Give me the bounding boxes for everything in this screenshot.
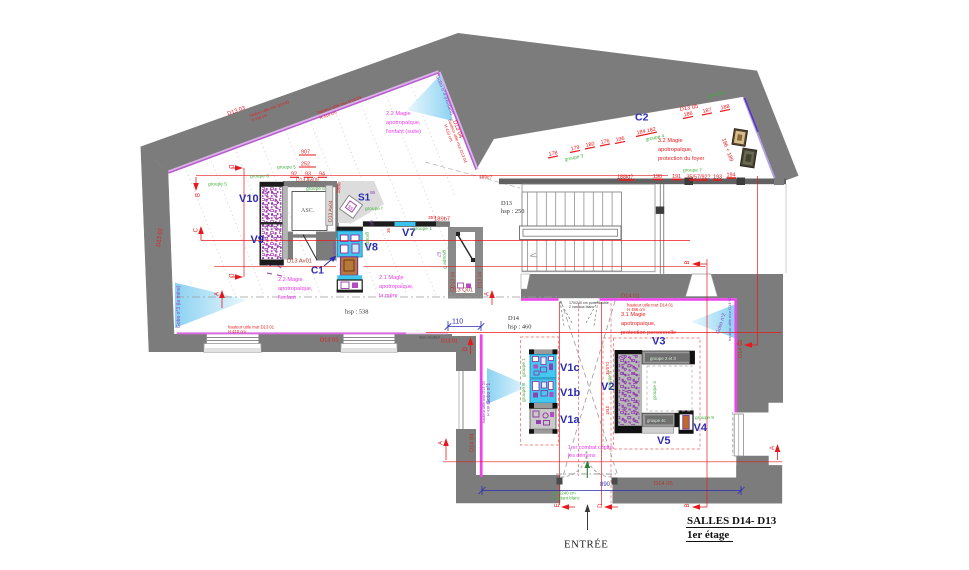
- svg-text:H 438 cm: H 438 cm: [487, 400, 491, 416]
- svg-text:groupe 4c: groupe 4c: [647, 418, 666, 423]
- svg-text:A: A: [770, 446, 776, 450]
- svg-text:V5: V5: [657, 435, 670, 447]
- svg-text:groupe 8: groupe 8: [521, 383, 527, 402]
- svg-text:protection du foyer: protection du foyer: [658, 156, 704, 162]
- svg-text:V3: V3: [652, 336, 665, 348]
- svg-text:D14 02: D14 02: [738, 339, 744, 358]
- svg-text:apotropaïque,: apotropaïque,: [278, 286, 313, 292]
- svg-text:B: B: [685, 504, 691, 508]
- svg-text:D13 04: D13 04: [451, 272, 457, 288]
- svg-text:V4: V4: [694, 422, 708, 434]
- svg-text:2 vantaux blanc: 2 vantaux blanc: [569, 305, 594, 309]
- svg-text:groupe 7: groupe 7: [683, 168, 702, 174]
- svg-text:D13: D13: [501, 200, 512, 207]
- svg-text:93: 93: [305, 172, 311, 178]
- svg-text:D: D: [227, 165, 233, 170]
- svg-text:189b7: 189b7: [434, 217, 450, 223]
- svg-text:A: A: [485, 292, 491, 296]
- svg-text:D: D: [598, 503, 604, 508]
- svg-text:C1: C1: [311, 266, 324, 277]
- svg-text:E: E: [555, 504, 561, 508]
- svg-text:V9: V9: [251, 234, 264, 246]
- svg-text:ENTRÉE: ENTRÉE: [564, 539, 608, 551]
- svg-text:groupe 6: groupe 6: [250, 174, 269, 180]
- svg-text:890: 890: [600, 482, 611, 488]
- svg-text:groupe 1: groupe 1: [521, 358, 527, 377]
- svg-text:groupe 9: groupe 9: [695, 415, 714, 421]
- svg-text:D: D: [227, 274, 233, 279]
- svg-text:groupe 5: groupe 5: [277, 165, 296, 171]
- svg-text:H 410 cm: H 410 cm: [228, 329, 246, 334]
- svg-text:B: B: [196, 193, 202, 197]
- svg-text:92: 92: [291, 172, 297, 178]
- svg-text:Gobo n°3 (la mère): Gobo n°3 (la mère): [176, 285, 182, 328]
- svg-text:apotropaïque,: apotropaïque,: [379, 284, 414, 290]
- svg-text:1er étage: 1er étage: [687, 529, 729, 541]
- svg-text:protection personnelle: protection personnelle: [621, 330, 676, 336]
- svg-text:H 486 cm: H 486 cm: [627, 307, 645, 312]
- svg-text:groupe 2: groupe 2: [364, 232, 371, 251]
- svg-text:35/57b: 35/57b: [332, 242, 337, 255]
- svg-text:95: 95: [370, 190, 376, 195]
- svg-text:hauteur utile mur D14 04: hauteur utile mur D14 04: [482, 381, 486, 423]
- svg-text:V1b: V1b: [560, 387, 580, 399]
- svg-text:D: D: [463, 346, 469, 351]
- svg-text:D14 05: D14 05: [654, 481, 673, 487]
- svg-text:57: 57: [435, 252, 441, 258]
- svg-text:181b: 181b: [605, 405, 610, 415]
- svg-text:groupe 1: groupe 1: [413, 226, 432, 232]
- svg-text:apotropaïque,: apotropaïque,: [386, 120, 421, 126]
- svg-text:2.2 Magie: 2.2 Magie: [386, 111, 411, 117]
- svg-text:35?: 35?: [428, 215, 436, 221]
- svg-text:V1a: V1a: [560, 414, 580, 426]
- svg-text:store occultant: store occultant: [419, 336, 440, 340]
- svg-text:hsp : 460: hsp : 460: [508, 324, 531, 331]
- svg-text:B: B: [685, 261, 691, 265]
- svg-text:groupe 2 et 3: groupe 2 et 3: [650, 356, 676, 361]
- svg-text:groupe 6: groupe 6: [306, 186, 325, 192]
- svg-text:2 battant blanc: 2 battant blanc: [551, 496, 581, 501]
- svg-text:S1: S1: [358, 193, 371, 204]
- svg-text:A: A: [439, 441, 445, 445]
- svg-text:2.2 Magie: 2.2 Magie: [278, 277, 303, 283]
- svg-text:D13 04: D13 04: [478, 272, 484, 288]
- svg-text:110: 110: [452, 319, 463, 326]
- svg-text:ASC.: ASC.: [301, 208, 315, 214]
- svg-text:A: A: [215, 292, 221, 296]
- svg-text:35: 35: [386, 227, 391, 233]
- svg-text:groupe 9: groupe 9: [441, 250, 448, 269]
- svg-text:D13 Aw09: D13 Aw09: [296, 178, 319, 184]
- svg-text:hsp : 538: hsp : 538: [345, 309, 368, 316]
- svg-text:D13 01: D13 01: [320, 338, 339, 344]
- svg-text:C2: C2: [635, 112, 649, 124]
- svg-text:apotropaïque,: apotropaïque,: [658, 147, 693, 153]
- svg-text:les démons: les démons: [568, 453, 596, 459]
- svg-text:la mère: la mère: [379, 293, 398, 299]
- svg-text:D14 04: D14 04: [470, 433, 476, 452]
- svg-text:D14: D14: [508, 315, 520, 322]
- svg-text:apotropaïque,: apotropaïque,: [621, 321, 656, 327]
- svg-text:D14 01: D14 01: [621, 294, 640, 300]
- svg-text:189a: 189a: [336, 182, 342, 194]
- svg-text:groupe 4: groupe 4: [652, 381, 658, 400]
- svg-text:D13 01: D13 01: [441, 339, 458, 345]
- svg-text:189c?: 189c?: [479, 175, 492, 181]
- svg-text:D13 Av04: D13 Av04: [328, 200, 335, 222]
- svg-text:SALLES D14- D13: SALLES D14- D13: [687, 515, 777, 527]
- svg-text:V10: V10: [239, 193, 259, 205]
- svg-text:l'enfant: l'enfant: [278, 295, 296, 301]
- svg-text:groupe 5: groupe 5: [208, 182, 227, 188]
- svg-text:hauteur utile mur D14 02: hauteur utile mur D14 02: [727, 296, 732, 341]
- svg-text:2.1 Magie: 2.1 Magie: [379, 275, 404, 281]
- svg-text:35/57d: 35/57d: [605, 362, 610, 375]
- svg-text:1 er combat contre: 1 er combat contre: [568, 445, 613, 451]
- svg-text:D13 Av01: D13 Av01: [287, 259, 312, 265]
- svg-text:94: 94: [319, 172, 325, 178]
- svg-text:3.1 Magie: 3.1 Magie: [621, 312, 646, 318]
- svg-text:l'enfant (suite): l'enfant (suite): [386, 129, 421, 135]
- svg-text:C: C: [194, 227, 200, 232]
- svg-text:groupe f: groupe f: [365, 206, 383, 212]
- svg-text:hsp : 250: hsp : 250: [501, 208, 524, 215]
- svg-text:V1c: V1c: [560, 362, 580, 374]
